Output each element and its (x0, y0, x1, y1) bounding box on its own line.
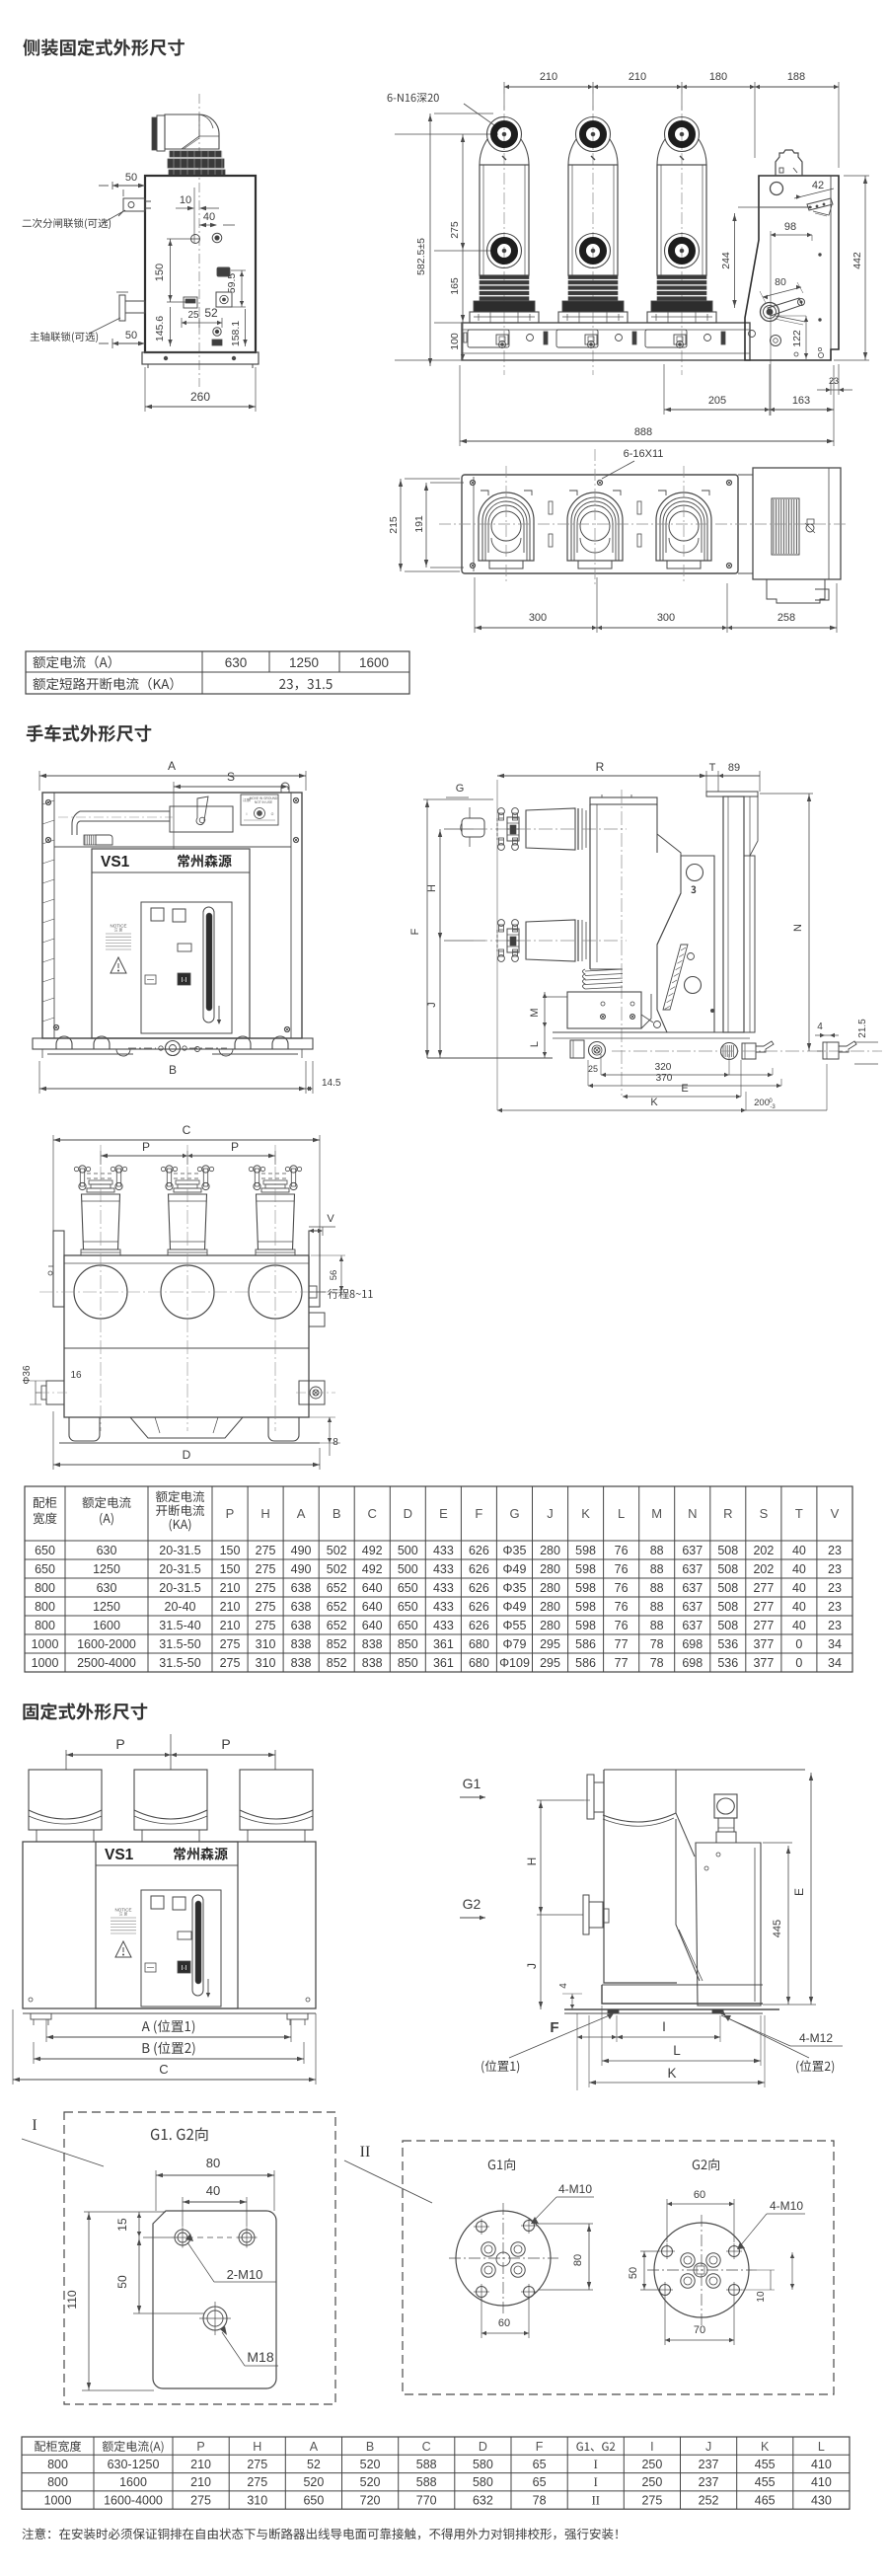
svg-text:0: 0 (795, 1656, 802, 1670)
svg-text:89: 89 (728, 762, 740, 774)
svg-text:630: 630 (97, 1581, 117, 1595)
svg-text:A: A (310, 2440, 319, 2454)
svg-text:260: 260 (190, 390, 210, 404)
svg-text:637: 637 (682, 1600, 703, 1614)
svg-text:455: 455 (755, 2458, 776, 2471)
svg-text:210: 210 (629, 71, 646, 83)
svg-text:77: 77 (615, 1656, 629, 1670)
svg-text:433: 433 (433, 1562, 454, 1576)
svg-text:E: E (439, 1506, 448, 1521)
svg-text:598: 598 (575, 1562, 596, 1576)
svg-text:100: 100 (449, 333, 461, 350)
svg-text:650: 650 (398, 1600, 418, 1614)
svg-text:508: 508 (717, 1600, 738, 1614)
svg-text:J: J (547, 1506, 554, 1521)
svg-text:Φ35: Φ35 (503, 1581, 527, 1595)
svg-text:430: 430 (811, 2494, 832, 2508)
svg-text:237: 237 (699, 2475, 719, 2489)
svg-text:520: 520 (360, 2458, 381, 2471)
svg-text:G: G (456, 783, 465, 795)
svg-text:626: 626 (469, 1544, 489, 1557)
svg-text:56: 56 (329, 1270, 339, 1281)
svg-text:250: 250 (641, 2475, 662, 2489)
svg-text:508: 508 (717, 1544, 738, 1557)
svg-text:1000: 1000 (44, 2494, 72, 2508)
svg-text:P: P (142, 1140, 150, 1154)
svg-text:698: 698 (682, 1637, 703, 1651)
svg-text:20-31.5: 20-31.5 (159, 1581, 200, 1595)
svg-text:J: J (705, 2440, 711, 2454)
svg-text:2500-4000: 2500-4000 (77, 1656, 136, 1670)
svg-text:275: 275 (449, 221, 461, 239)
svg-text:370: 370 (656, 1073, 673, 1084)
svg-text:P: P (226, 1506, 235, 1521)
svg-text:NOT IN USE: NOT IN USE (255, 800, 272, 804)
svg-text:637: 637 (682, 1581, 703, 1595)
svg-text:588: 588 (416, 2475, 437, 2489)
svg-text:536: 536 (717, 1637, 738, 1651)
svg-text:40: 40 (792, 1600, 806, 1614)
svg-text:II: II (592, 2494, 600, 2508)
svg-text:I: I (650, 2440, 653, 2454)
svg-text:310: 310 (256, 1637, 276, 1651)
svg-text:M18: M18 (247, 2349, 273, 2365)
svg-text:L: L (818, 2440, 825, 2454)
svg-text:110: 110 (65, 2290, 79, 2309)
svg-text:250: 250 (641, 2458, 662, 2471)
svg-text:N: N (688, 1506, 697, 1521)
svg-text:280: 280 (540, 1562, 560, 1576)
svg-text:640: 640 (362, 1600, 383, 1614)
svg-text:637: 637 (682, 1619, 703, 1632)
svg-text:78: 78 (650, 1637, 664, 1651)
svg-text:210: 210 (540, 71, 557, 83)
svg-text:770: 770 (416, 2494, 437, 2508)
svg-text:25: 25 (187, 310, 199, 321)
svg-text:P: P (196, 2440, 204, 2454)
svg-text:L: L (673, 2043, 681, 2058)
svg-text:1250: 1250 (289, 655, 319, 670)
svg-text:50: 50 (628, 2267, 639, 2279)
svg-text:76: 76 (615, 1581, 629, 1595)
svg-text:210: 210 (220, 1600, 241, 1614)
svg-text:2-M10: 2-M10 (227, 2267, 263, 2282)
svg-text:650: 650 (303, 2494, 324, 2508)
svg-text:50: 50 (125, 330, 137, 341)
svg-text:280: 280 (540, 1600, 560, 1614)
svg-text:31.5-50: 31.5-50 (159, 1637, 200, 1651)
svg-text:78: 78 (650, 1656, 664, 1670)
svg-text:630-1250: 630-1250 (108, 2458, 160, 2471)
svg-text:14.5: 14.5 (322, 1078, 341, 1089)
svg-text:L: L (618, 1506, 625, 1521)
svg-text:191: 191 (413, 515, 425, 533)
svg-text:4-M10: 4-M10 (770, 2199, 803, 2213)
svg-text:202: 202 (753, 1544, 774, 1557)
svg-text:598: 598 (575, 1544, 596, 1557)
svg-text:163: 163 (792, 395, 810, 407)
svg-text:H: H (426, 884, 438, 892)
svg-text:N: N (792, 924, 804, 932)
svg-text:122: 122 (791, 330, 803, 347)
svg-text:Φ36: Φ36 (22, 1365, 33, 1385)
svg-text:98: 98 (784, 221, 796, 233)
svg-text:650: 650 (398, 1581, 418, 1595)
svg-text:20-31.5: 20-31.5 (159, 1562, 200, 1576)
svg-text:275: 275 (220, 1656, 241, 1670)
svg-text:640: 640 (362, 1581, 383, 1595)
svg-text:40: 40 (792, 1581, 806, 1595)
svg-text:23: 23 (828, 1600, 842, 1614)
svg-text:210: 210 (220, 1581, 241, 1595)
svg-text:680: 680 (469, 1637, 489, 1651)
svg-text:200: 200 (754, 1098, 770, 1108)
svg-text:508: 508 (717, 1619, 738, 1632)
svg-text:582.5±5: 582.5±5 (415, 238, 427, 275)
svg-text:275: 275 (247, 2475, 267, 2489)
svg-text:442: 442 (851, 252, 863, 269)
svg-text:40: 40 (203, 211, 215, 223)
svg-text:277: 277 (753, 1581, 774, 1595)
svg-text:630: 630 (225, 655, 248, 670)
svg-text:800: 800 (47, 2475, 68, 2489)
svg-text:K: K (581, 1506, 590, 1521)
svg-text:244: 244 (720, 252, 732, 269)
svg-text:F: F (475, 1506, 482, 1521)
svg-text:Φ35: Φ35 (503, 1544, 527, 1557)
svg-text:40: 40 (206, 2183, 220, 2198)
svg-text:D: D (479, 2440, 487, 2454)
svg-text:630: 630 (97, 1544, 117, 1557)
svg-text:500: 500 (398, 1562, 418, 1576)
svg-text:210: 210 (190, 2458, 211, 2471)
svg-text:252: 252 (699, 2494, 719, 2508)
svg-text:377: 377 (753, 1637, 774, 1651)
svg-text:1250: 1250 (93, 1600, 120, 1614)
svg-text:4: 4 (817, 1022, 823, 1032)
svg-text:V: V (831, 1506, 840, 1521)
svg-text:838: 838 (362, 1656, 383, 1670)
svg-text:16: 16 (70, 1370, 82, 1381)
svg-text:10: 10 (180, 194, 191, 206)
svg-text:77: 77 (615, 1637, 629, 1651)
svg-text:536: 536 (717, 1656, 738, 1670)
svg-text:20-40: 20-40 (165, 1600, 196, 1614)
svg-text:88: 88 (650, 1600, 664, 1614)
svg-text:Φ49: Φ49 (503, 1562, 527, 1576)
svg-text:852: 852 (327, 1637, 347, 1651)
svg-text:42: 42 (812, 180, 824, 191)
svg-text:520: 520 (303, 2475, 324, 2489)
svg-text:433: 433 (433, 1619, 454, 1632)
svg-text:L: L (529, 1041, 541, 1047)
svg-text:410: 410 (811, 2475, 832, 2489)
svg-text:800: 800 (35, 1581, 55, 1595)
svg-text:145.6: 145.6 (154, 316, 166, 341)
svg-text:P: P (221, 1736, 230, 1752)
svg-text:1000: 1000 (32, 1637, 59, 1651)
svg-text:838: 838 (291, 1637, 312, 1651)
svg-text:23: 23 (828, 1562, 842, 1576)
svg-text:638: 638 (291, 1581, 312, 1595)
svg-text:40: 40 (792, 1544, 806, 1557)
svg-text:888: 888 (634, 426, 652, 438)
svg-text:R: R (596, 760, 605, 774)
svg-text:Φ79: Φ79 (503, 1637, 527, 1651)
svg-text:23: 23 (828, 1544, 842, 1557)
svg-text:50: 50 (125, 172, 137, 184)
svg-text:720: 720 (360, 2494, 381, 2508)
svg-text:280: 280 (540, 1544, 560, 1557)
svg-text:275: 275 (220, 1637, 241, 1651)
svg-text:23: 23 (828, 1581, 842, 1595)
svg-text:361: 361 (433, 1637, 454, 1651)
svg-text:377: 377 (753, 1656, 774, 1670)
svg-text:F: F (536, 2440, 544, 2454)
svg-text:580: 580 (473, 2458, 493, 2471)
svg-text:23: 23 (828, 1619, 842, 1632)
svg-text:275: 275 (256, 1600, 276, 1614)
svg-text:277: 277 (753, 1619, 774, 1632)
svg-text:II: II (360, 2144, 371, 2160)
svg-text:640: 640 (362, 1619, 383, 1632)
svg-text:D: D (183, 1448, 191, 1462)
svg-text:25: 25 (588, 1064, 598, 1074)
svg-text:B: B (366, 2440, 374, 2454)
svg-text:445: 445 (772, 1920, 783, 1937)
svg-text:76: 76 (615, 1562, 629, 1576)
svg-text:80: 80 (572, 2254, 584, 2266)
svg-text:60: 60 (498, 2317, 510, 2329)
svg-text:626: 626 (469, 1581, 489, 1595)
svg-text:258: 258 (777, 612, 795, 624)
svg-text:52: 52 (307, 2458, 321, 2471)
svg-text:275: 275 (247, 2458, 267, 2471)
svg-text:280: 280 (540, 1619, 560, 1632)
svg-text:650: 650 (35, 1544, 55, 1557)
svg-text:638: 638 (291, 1600, 312, 1614)
svg-text:-3: -3 (770, 1104, 776, 1110)
svg-text:40: 40 (792, 1619, 806, 1632)
svg-text:76: 76 (615, 1619, 629, 1632)
svg-text:433: 433 (433, 1581, 454, 1595)
svg-text:652: 652 (327, 1619, 347, 1632)
svg-text:I·I: I·I (181, 1965, 186, 1972)
svg-text:508: 508 (717, 1562, 738, 1576)
svg-text:295: 295 (540, 1656, 560, 1670)
svg-text:C: C (159, 2062, 168, 2077)
svg-text:626: 626 (469, 1600, 489, 1614)
svg-text:76: 76 (615, 1544, 629, 1557)
svg-text:88: 88 (650, 1562, 664, 1576)
svg-text:I: I (594, 2475, 598, 2489)
svg-text:165: 165 (449, 277, 461, 295)
svg-text:C: C (183, 1123, 191, 1137)
svg-text:598: 598 (575, 1600, 596, 1614)
svg-text:310: 310 (256, 1656, 276, 1670)
svg-text:410: 410 (811, 2458, 832, 2471)
svg-text:210: 210 (190, 2475, 211, 2489)
svg-text:433: 433 (433, 1544, 454, 1557)
svg-text:S: S (760, 1506, 769, 1521)
svg-text:492: 492 (362, 1544, 383, 1557)
svg-text:K: K (650, 1097, 658, 1108)
svg-text:VS1: VS1 (105, 1847, 134, 1863)
svg-text:VS1: VS1 (101, 854, 130, 871)
svg-text:15: 15 (115, 2218, 129, 2232)
svg-text:202: 202 (753, 1562, 774, 1576)
svg-text:850: 850 (398, 1637, 418, 1651)
svg-text:D: D (404, 1506, 412, 1521)
svg-text:K: K (761, 2440, 770, 2454)
svg-text:838: 838 (362, 1637, 383, 1651)
svg-text:31.5-50: 31.5-50 (159, 1656, 200, 1670)
svg-text:502: 502 (327, 1562, 347, 1576)
svg-text:4-M10: 4-M10 (558, 2182, 592, 2196)
svg-text:277: 277 (753, 1600, 774, 1614)
svg-text:158.1: 158.1 (230, 321, 242, 346)
svg-text:632: 632 (473, 2494, 493, 2508)
svg-text:652: 652 (327, 1600, 347, 1614)
svg-text:S: S (227, 770, 235, 784)
svg-text:580: 580 (473, 2475, 493, 2489)
svg-text:80: 80 (206, 2156, 220, 2170)
svg-text:H: H (525, 1857, 539, 1866)
svg-text:G: G (509, 1506, 519, 1521)
svg-text:188: 188 (787, 71, 805, 83)
svg-text:490: 490 (291, 1544, 312, 1557)
svg-text:M: M (651, 1506, 662, 1521)
svg-text:Φ109: Φ109 (499, 1656, 530, 1670)
svg-text:65: 65 (533, 2458, 547, 2471)
svg-text:650: 650 (398, 1619, 418, 1632)
svg-text:800: 800 (47, 2458, 68, 2471)
svg-text:10: 10 (756, 2291, 767, 2303)
svg-text:652: 652 (327, 1581, 347, 1595)
svg-text:65: 65 (533, 2475, 547, 2489)
svg-text:650: 650 (35, 1562, 55, 1576)
svg-text:70: 70 (694, 2324, 705, 2336)
svg-text:R: R (723, 1506, 732, 1521)
svg-text:626: 626 (469, 1619, 489, 1632)
svg-text:8: 8 (333, 1437, 338, 1448)
svg-text:Φ49: Φ49 (503, 1600, 527, 1614)
svg-text:H: H (260, 1506, 269, 1521)
svg-text:626: 626 (469, 1562, 489, 1576)
svg-text:586: 586 (575, 1656, 596, 1670)
svg-text:280: 280 (540, 1581, 560, 1595)
svg-text:T: T (709, 762, 716, 774)
svg-text:275: 275 (256, 1581, 276, 1595)
svg-text:I: I (594, 2458, 598, 2471)
svg-text:20-31.5: 20-31.5 (159, 1544, 200, 1557)
svg-text:502: 502 (327, 1544, 347, 1557)
svg-text:C: C (368, 1506, 377, 1521)
svg-text:150: 150 (220, 1544, 241, 1557)
svg-text:P: P (231, 1140, 239, 1154)
svg-text:637: 637 (682, 1544, 703, 1557)
svg-text:88: 88 (650, 1619, 664, 1632)
svg-text:80: 80 (775, 276, 786, 288)
svg-text:C: C (422, 2440, 431, 2454)
svg-text:A: A (297, 1506, 306, 1521)
svg-text:637: 637 (682, 1562, 703, 1576)
svg-text:G2: G2 (463, 1896, 481, 1912)
svg-text:B: B (169, 1063, 177, 1077)
svg-text:1600: 1600 (359, 655, 389, 670)
svg-text:0: 0 (795, 1637, 802, 1651)
svg-text:E: E (792, 1888, 806, 1896)
svg-text:88: 88 (650, 1581, 664, 1595)
svg-text:K: K (667, 2066, 676, 2081)
svg-text:490: 490 (291, 1562, 312, 1576)
svg-text:275: 275 (190, 2494, 211, 2508)
svg-text:A: A (168, 759, 176, 773)
svg-text:G1: G1 (463, 1776, 481, 1791)
svg-text:1600-2000: 1600-2000 (77, 1637, 136, 1651)
svg-text:78: 78 (533, 2494, 547, 2508)
svg-text:520: 520 (360, 2475, 381, 2489)
svg-text:1600-4000: 1600-4000 (104, 2494, 163, 2508)
svg-text:361: 361 (433, 1656, 454, 1670)
svg-text:492: 492 (362, 1562, 383, 1576)
svg-text:180: 180 (709, 71, 727, 83)
svg-text:800: 800 (35, 1600, 55, 1614)
svg-text:H: H (253, 2440, 261, 2454)
svg-text:275: 275 (256, 1562, 276, 1576)
svg-text:150: 150 (154, 264, 166, 281)
svg-text:838: 838 (291, 1656, 312, 1670)
svg-text:60: 60 (694, 2189, 705, 2201)
svg-text:1600: 1600 (93, 1619, 120, 1632)
svg-text:注 意: 注 意 (114, 928, 123, 933)
svg-text:J: J (426, 1002, 438, 1008)
svg-text:588: 588 (416, 2458, 437, 2471)
svg-text:500: 500 (398, 1544, 418, 1557)
svg-text:275: 275 (641, 2494, 662, 2508)
svg-text:59.5: 59.5 (226, 273, 238, 294)
svg-text:E: E (681, 1083, 688, 1095)
svg-text:6-16X11: 6-16X11 (624, 448, 664, 460)
svg-text:586: 586 (575, 1637, 596, 1651)
svg-text:598: 598 (575, 1619, 596, 1632)
svg-text:698: 698 (682, 1656, 703, 1670)
svg-text:150: 150 (220, 1562, 241, 1576)
svg-text:800: 800 (35, 1619, 55, 1632)
svg-text:B: B (333, 1506, 341, 1521)
svg-text:275: 275 (256, 1544, 276, 1557)
svg-text:40: 40 (792, 1562, 806, 1576)
svg-text:31.5-40: 31.5-40 (159, 1619, 200, 1632)
svg-text:300: 300 (529, 612, 547, 624)
svg-text:34: 34 (828, 1656, 842, 1670)
svg-text:275: 275 (256, 1619, 276, 1632)
svg-text:4-M12: 4-M12 (799, 2031, 833, 2045)
svg-text:205: 205 (708, 395, 726, 407)
svg-text:310: 310 (247, 2494, 267, 2508)
svg-text:455: 455 (755, 2475, 776, 2489)
svg-text:850: 850 (398, 1656, 418, 1670)
svg-text:1000: 1000 (32, 1656, 59, 1670)
svg-text:T: T (795, 1506, 803, 1521)
svg-text:F: F (550, 2019, 558, 2036)
svg-text:O: O (271, 812, 274, 816)
svg-text:I·I: I·I (181, 977, 186, 984)
svg-text:210: 210 (220, 1619, 241, 1632)
svg-text:433: 433 (433, 1600, 454, 1614)
svg-text:1600: 1600 (119, 2475, 147, 2489)
svg-text:237: 237 (699, 2458, 719, 2471)
